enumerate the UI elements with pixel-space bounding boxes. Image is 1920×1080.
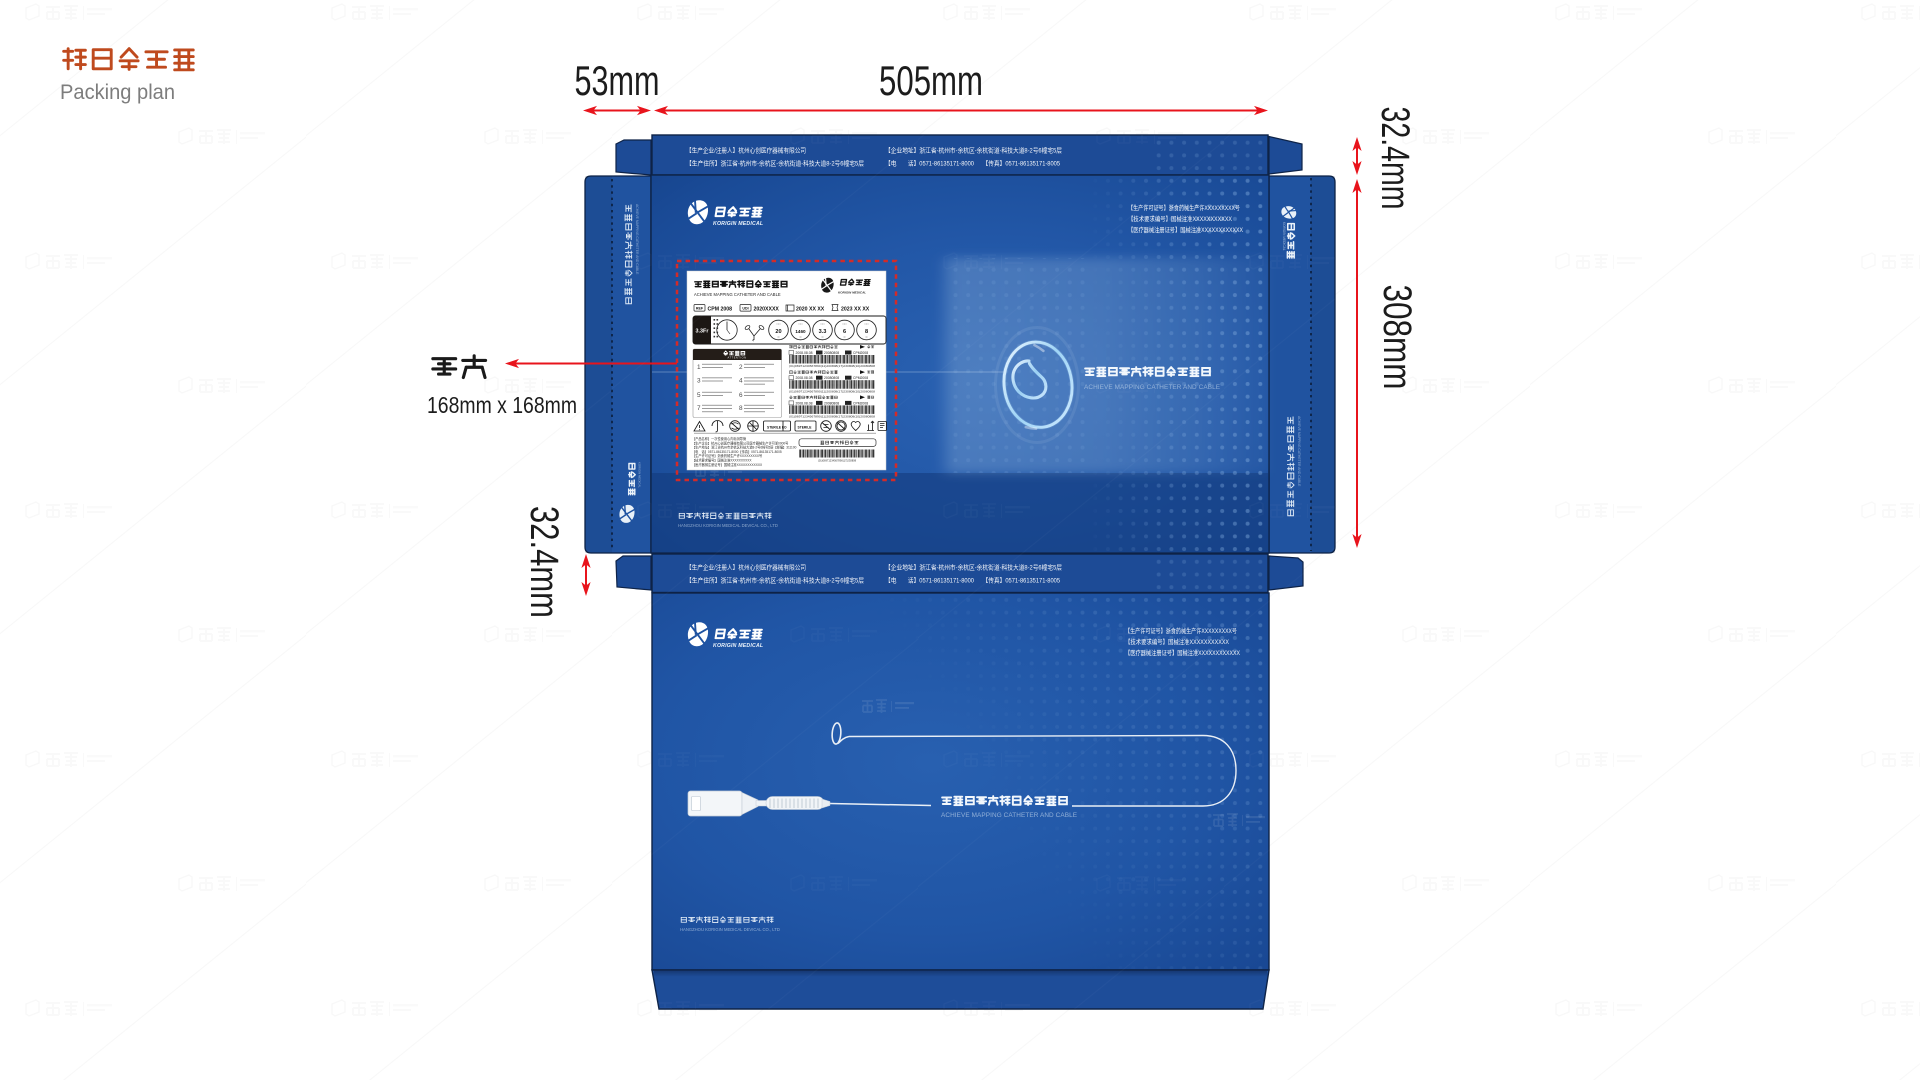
svg-text:32.4mm: 32.4mm — [522, 506, 566, 618]
svg-text:32.4mm: 32.4mm — [1373, 107, 1417, 210]
svg-text:53mm: 53mm — [575, 57, 660, 104]
svg-text:168mm x 168mm: 168mm x 168mm — [427, 392, 577, 418]
svg-text:Packing plan: Packing plan — [60, 81, 175, 104]
svg-text:308mm: 308mm — [1375, 285, 1419, 390]
svg-text:505mm: 505mm — [879, 57, 983, 104]
